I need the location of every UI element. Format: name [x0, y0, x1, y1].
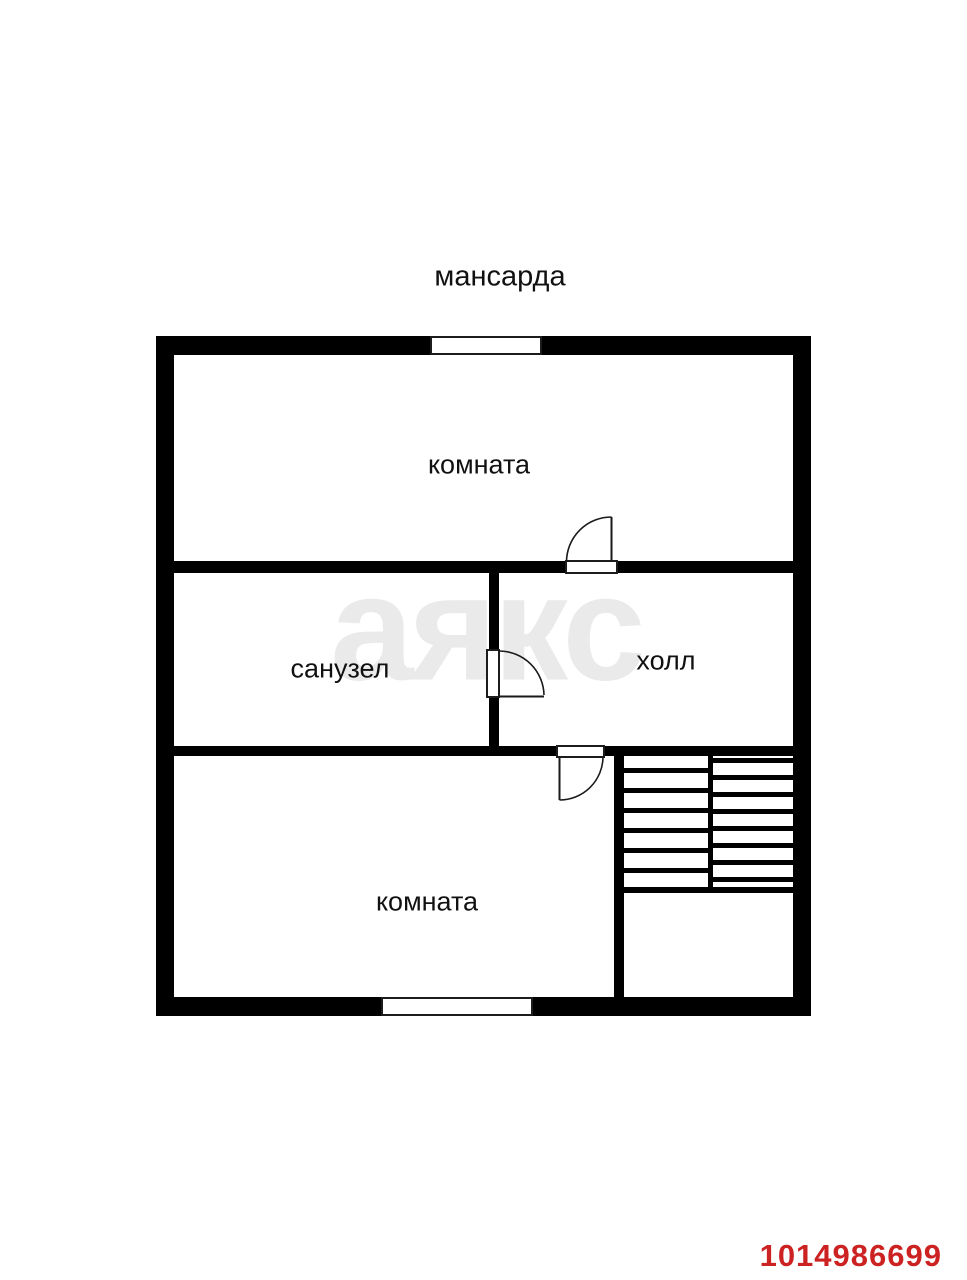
plan-title: мансарда — [434, 261, 565, 294]
listing-id: 1014986699 — [760, 1238, 942, 1274]
room-label-hall: холл — [636, 646, 695, 677]
window-bottom — [381, 997, 533, 1016]
room-label-top: комната — [428, 450, 530, 481]
stair-tread — [624, 768, 708, 773]
door-arc-room-bottom — [560, 757, 604, 800]
outer-wall-right — [793, 336, 811, 1016]
stair-tread — [713, 826, 793, 831]
outer-wall-left — [156, 336, 174, 1016]
stair-tread — [713, 758, 793, 763]
stair-tread — [624, 868, 708, 873]
stair-tread — [624, 848, 708, 853]
room-label-bottom: комната — [376, 887, 478, 918]
stair-treads-right — [713, 756, 793, 893]
stair-tread — [713, 860, 793, 865]
stair-tread — [624, 808, 708, 813]
stair-tread — [713, 877, 793, 882]
interior-wall-room-bottom — [174, 746, 794, 756]
door-sill-room-bottom — [556, 745, 605, 758]
stair-tread — [624, 828, 708, 833]
floorplan-canvas: мансарда аякс комната санузел холл комна… — [0, 0, 967, 1280]
stair-tread — [713, 843, 793, 848]
stair-tread — [713, 809, 793, 814]
window-top — [430, 336, 542, 355]
stair-tread — [624, 788, 708, 793]
stair-tread — [713, 792, 793, 797]
stair-treads-left — [624, 756, 708, 893]
staircase-bottom-edge — [624, 887, 793, 893]
staircase-left-wall — [614, 746, 624, 998]
interior-wall-room-top — [174, 561, 794, 573]
door-sill-room-top — [565, 560, 618, 574]
stair-tread — [713, 775, 793, 780]
door-leaf-bathroom — [486, 649, 500, 698]
room-label-bathroom: санузел — [291, 654, 390, 685]
